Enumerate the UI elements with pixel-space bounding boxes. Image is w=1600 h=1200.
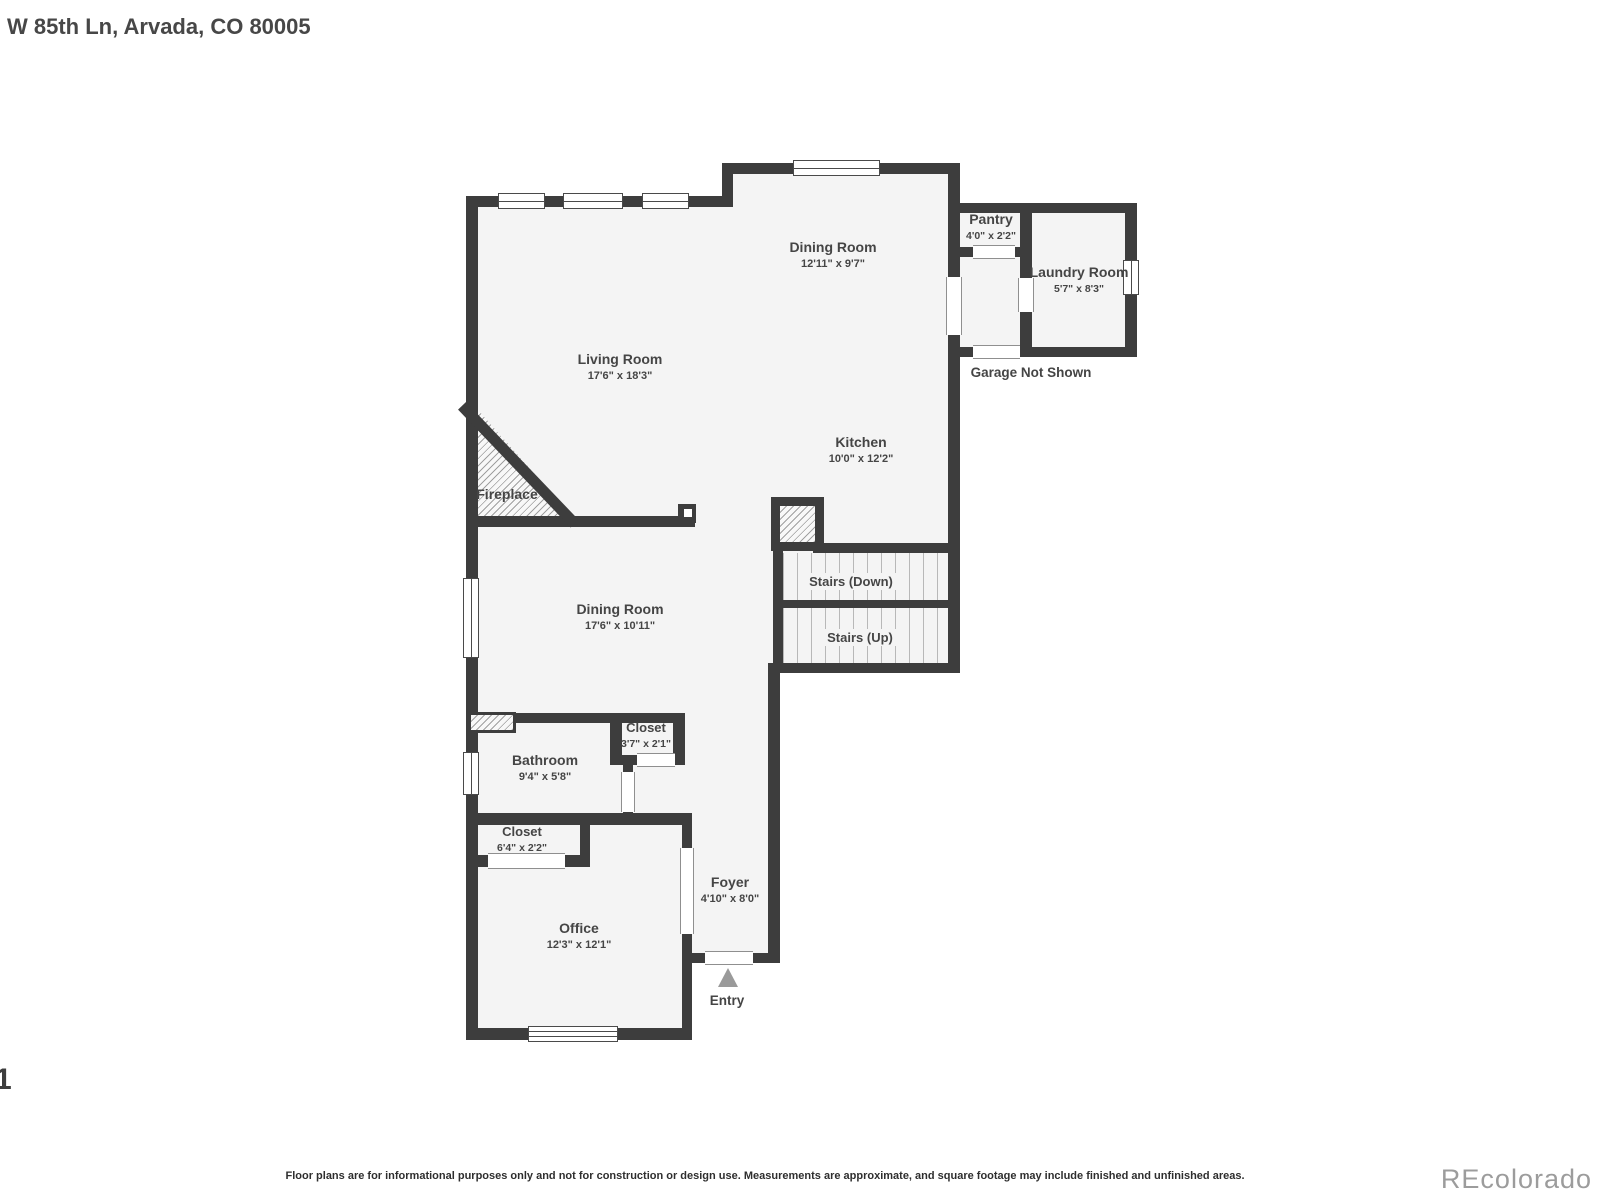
- stairs-up-label: Stairs (Up): [820, 629, 900, 646]
- room-label-dining-lower: Dining Room 17'6" x 10'11": [576, 601, 663, 633]
- door-office-foyer: [680, 848, 694, 934]
- room-label-foyer: Foyer 4'10" x 8'0": [701, 874, 759, 906]
- wall-end-cap: [678, 504, 696, 523]
- page-title: W 85th Ln, Arvada, CO 80005: [7, 14, 311, 40]
- wall-stairs-left: [773, 545, 783, 673]
- window-bathroom-left: [463, 752, 479, 795]
- room-label-kitchen: Kitchen 10'0" x 12'2": [829, 434, 894, 466]
- room-label-laundry: Laundry Room 5'7" x 8'3": [1030, 264, 1129, 296]
- wall-stairs-bottom: [771, 663, 960, 673]
- chimney-box: [771, 497, 824, 551]
- floor-plan-page: W 85th Ln, Arvada, CO 80005: [0, 0, 1600, 1200]
- wall-foyer-right: [768, 663, 780, 963]
- wall-stairs-divider: [773, 600, 948, 608]
- bathroom-shelf-hatch: [468, 712, 516, 733]
- disclaimer-text: Floor plans are for informational purpos…: [285, 1170, 1244, 1182]
- entry-arrow-icon: [718, 968, 738, 987]
- page-number: 1: [0, 1063, 12, 1097]
- wall-step: [722, 163, 733, 207]
- door-garage: [973, 345, 1020, 359]
- window-dining-left: [463, 578, 479, 658]
- door-pantry: [973, 245, 1015, 259]
- room-label-closet-office: Closet 6'4" x 2'2": [497, 824, 547, 855]
- wall-living-divider: [466, 516, 695, 527]
- window-living-3: [642, 193, 689, 209]
- room-label-office: Office 12'3" x 12'1": [547, 920, 612, 952]
- entry-label: Entry: [710, 993, 745, 1008]
- window-living-1: [498, 193, 545, 209]
- floor-dining-kitchen: [727, 169, 954, 548]
- room-label-bathroom: Bathroom 9'4" x 5'8": [512, 752, 578, 784]
- garage-note: Garage Not Shown: [971, 365, 1092, 380]
- room-label-pantry: Pantry 4'0" x 2'2": [966, 211, 1016, 243]
- wall-closet-office-right: [580, 825, 590, 867]
- door-entry-opening: [705, 951, 753, 965]
- fireplace-label: Fireplace: [476, 486, 537, 502]
- door-closet-hall: [637, 753, 675, 767]
- window-dining-top: [793, 160, 880, 176]
- door-kitchen-vestibule: [946, 277, 962, 335]
- door-bathroom: [621, 772, 635, 812]
- room-label-dining-upper: Dining Room 12'11" x 9'7": [789, 239, 876, 271]
- wall-right-exterior: [948, 163, 960, 673]
- window-office-bottom: [528, 1026, 618, 1042]
- room-label-living: Living Room 17'6" x 18'3": [578, 351, 663, 383]
- door-closet-office: [488, 853, 565, 869]
- wall-stairs-top: [813, 543, 960, 553]
- stairs-down-label: Stairs (Down): [802, 573, 900, 590]
- recolorado-watermark: REcolorado: [1441, 1164, 1592, 1195]
- room-label-closet-hall: Closet 3'7" x 2'1": [621, 720, 671, 751]
- window-living-2: [563, 193, 623, 209]
